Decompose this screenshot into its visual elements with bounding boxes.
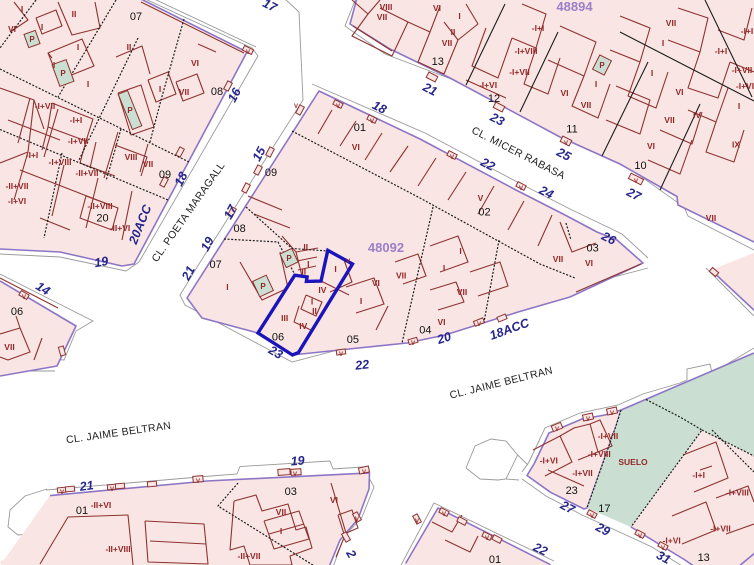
svg-text:V: V: [355, 517, 359, 523]
svg-text:I: I: [77, 42, 79, 52]
svg-text:P: P: [260, 282, 266, 291]
svg-text:V: V: [246, 50, 250, 56]
svg-text:IV: IV: [299, 321, 307, 331]
svg-text:-I+VII: -I+VII: [509, 67, 530, 77]
svg-text:-II+VII: -II+VII: [6, 181, 29, 191]
svg-text:-I+I: -I+I: [715, 46, 728, 56]
svg-text:I: I: [334, 264, 336, 274]
svg-text:VII: VII: [179, 87, 189, 97]
svg-text:V: V: [610, 411, 614, 417]
svg-text:23: 23: [566, 485, 578, 497]
svg-text:V: V: [293, 472, 297, 478]
svg-text:V: V: [590, 514, 594, 520]
svg-text:I: I: [159, 84, 161, 94]
svg-text:22: 22: [354, 357, 370, 372]
svg-text:I: I: [21, 4, 23, 14]
svg-text:V: V: [294, 104, 298, 110]
svg-text:VI: VI: [675, 87, 683, 97]
svg-text:19: 19: [93, 254, 109, 270]
svg-text:01: 01: [489, 554, 501, 565]
svg-text:VI: VI: [560, 88, 568, 98]
svg-text:V: V: [634, 179, 638, 185]
svg-text:II: II: [72, 9, 77, 19]
svg-text:P: P: [29, 35, 35, 44]
svg-text:V: V: [415, 519, 419, 525]
svg-text:17: 17: [598, 503, 610, 515]
svg-text:VII: VII: [706, 213, 716, 223]
svg-text:03: 03: [586, 243, 598, 255]
svg-text:-I+I: -I+I: [692, 470, 705, 480]
svg-text:III: III: [281, 313, 288, 323]
svg-text:VI: VI: [8, 24, 16, 34]
svg-text:-I+VII: -I+VII: [68, 136, 89, 146]
svg-text:VI: VI: [330, 495, 338, 505]
svg-text:04: 04: [419, 325, 431, 337]
svg-text:09: 09: [265, 167, 277, 179]
svg-text:P: P: [286, 254, 292, 263]
svg-text:II: II: [451, 27, 456, 37]
svg-text:V: V: [336, 104, 340, 110]
svg-text:VIII: VIII: [380, 2, 393, 12]
svg-text:VIII: VIII: [125, 152, 138, 162]
svg-text:VI: VI: [585, 258, 593, 268]
svg-text:-I+VIII: -I+VIII: [49, 157, 72, 167]
svg-text:21: 21: [78, 478, 95, 494]
svg-text:-I+VI: -I+VI: [736, 81, 754, 91]
svg-text:VII: VII: [581, 100, 591, 110]
svg-text:VII: VII: [457, 287, 467, 297]
svg-text:-I+I: -I+I: [741, 26, 754, 36]
svg-text:-I+VII: -I+VII: [35, 101, 56, 111]
svg-text:VI: VI: [191, 58, 199, 68]
svg-text:II: II: [127, 42, 132, 52]
svg-text:48894: 48894: [556, 0, 593, 14]
svg-text:VI: VI: [352, 142, 360, 152]
svg-text:05: 05: [347, 334, 359, 346]
svg-text:06: 06: [11, 306, 23, 318]
svg-text:I: I: [738, 101, 740, 111]
svg-text:I: I: [87, 79, 89, 89]
svg-text:VII: VII: [664, 115, 674, 125]
svg-text:I: I: [41, 22, 43, 32]
svg-text:P: P: [127, 106, 133, 115]
svg-text:II: II: [312, 306, 317, 316]
svg-text:11: 11: [566, 124, 577, 136]
svg-text:IX: IX: [732, 140, 740, 150]
svg-text:VI: VI: [372, 278, 380, 288]
svg-text:-I+VII: -I+VII: [710, 524, 731, 534]
svg-text:V: V: [110, 487, 114, 493]
svg-text:-I+VII: -I+VII: [732, 65, 753, 75]
svg-text:V: V: [519, 186, 523, 192]
svg-text:07: 07: [130, 11, 142, 23]
svg-text:VI: VI: [433, 3, 441, 13]
svg-text:V: V: [564, 141, 568, 147]
svg-text:II: II: [301, 267, 306, 277]
svg-text:-I+I: -I+I: [26, 150, 39, 160]
svg-text:II: II: [303, 242, 308, 252]
svg-text:VII: VII: [553, 254, 563, 264]
svg-text:IV: IV: [693, 110, 701, 120]
svg-text:13: 13: [698, 552, 710, 564]
svg-text:-I+VI: -I+VI: [663, 535, 681, 545]
svg-text:V: V: [60, 490, 64, 496]
svg-text:V: V: [362, 470, 366, 476]
svg-text:SUELO: SUELO: [618, 457, 648, 467]
svg-text:08: 08: [233, 223, 245, 235]
svg-text:P: P: [599, 61, 605, 70]
svg-text:08: 08: [211, 86, 223, 98]
svg-text:-I+VIII: -I+VIII: [588, 449, 611, 459]
svg-text:V: V: [478, 193, 484, 203]
svg-text:-I+VI: -I+VI: [479, 80, 497, 90]
svg-text:-II+VII: -II+VII: [238, 551, 261, 561]
svg-text:01: 01: [76, 505, 88, 517]
svg-text:I: I: [651, 68, 653, 78]
svg-text:I: I: [595, 79, 597, 89]
svg-text:VII: VII: [442, 38, 452, 48]
svg-text:-I+I: -I+I: [70, 115, 83, 125]
svg-text:03: 03: [285, 486, 297, 498]
svg-text:V: V: [661, 546, 665, 552]
svg-text:V: V: [586, 417, 590, 423]
svg-text:-II+VIII: -II+VIII: [87, 201, 112, 211]
svg-text:I: I: [459, 246, 461, 256]
svg-text:I: I: [360, 296, 362, 306]
svg-text:V: V: [638, 534, 642, 540]
svg-text:I: I: [53, 60, 55, 70]
svg-text:I: I: [662, 38, 664, 48]
svg-text:-II+VI: -II+VI: [91, 500, 112, 510]
svg-text:I: I: [307, 259, 309, 269]
svg-text:-I+VII: -I+VII: [572, 468, 593, 478]
svg-text:12: 12: [488, 93, 500, 105]
svg-text:V: V: [477, 322, 481, 328]
svg-text:10: 10: [634, 160, 646, 172]
svg-text:I: I: [458, 11, 460, 21]
svg-text:06: 06: [272, 332, 284, 344]
svg-text:19: 19: [290, 454, 305, 469]
svg-text:IV: IV: [318, 285, 326, 295]
svg-text:V: V: [339, 352, 343, 358]
svg-text:VII: VII: [396, 271, 406, 281]
svg-text:-II+VII: -II+VII: [76, 168, 99, 178]
svg-text:07: 07: [209, 259, 221, 271]
svg-text:02: 02: [478, 207, 490, 219]
svg-text:-I+VI: -I+VI: [540, 456, 558, 466]
svg-text:V: V: [196, 479, 200, 485]
svg-text:VII: VII: [666, 18, 676, 28]
svg-text:-I+VII: -I+VII: [598, 431, 619, 441]
svg-text:-I+VI: -I+VI: [8, 196, 26, 206]
svg-text:V: V: [450, 155, 454, 161]
svg-text:V: V: [485, 536, 489, 542]
svg-text:01: 01: [354, 122, 366, 134]
svg-text:VII: VII: [377, 12, 387, 22]
svg-text:-I+I: -I+I: [532, 23, 545, 33]
svg-text:VII: VII: [276, 507, 286, 517]
svg-text:VII: VII: [4, 342, 14, 352]
svg-text:20: 20: [96, 213, 108, 225]
svg-text:-II+VIII: -II+VIII: [105, 544, 130, 554]
svg-text:48092: 48092: [368, 240, 404, 255]
svg-text:-II+VI: -II+VI: [110, 223, 131, 233]
svg-text:I: I: [226, 282, 228, 292]
svg-text:V: V: [411, 341, 415, 347]
svg-text:V: V: [22, 295, 26, 301]
svg-text:VI: VI: [647, 141, 655, 151]
svg-text:VI: VI: [437, 317, 445, 327]
svg-text:09: 09: [159, 169, 171, 181]
svg-text:I: I: [280, 526, 282, 536]
svg-text:13: 13: [432, 56, 444, 68]
svg-text:V: V: [346, 259, 350, 265]
svg-text:P: P: [60, 69, 66, 78]
svg-text:VII: VII: [143, 159, 153, 169]
svg-text:I: I: [443, 263, 445, 273]
svg-text:V: V: [555, 427, 559, 433]
svg-text:-I+VIII: -I+VIII: [726, 487, 749, 497]
svg-text:V: V: [370, 119, 374, 125]
svg-text:V: V: [442, 512, 446, 518]
svg-text:-I+VIII: -I+VIII: [515, 46, 538, 56]
